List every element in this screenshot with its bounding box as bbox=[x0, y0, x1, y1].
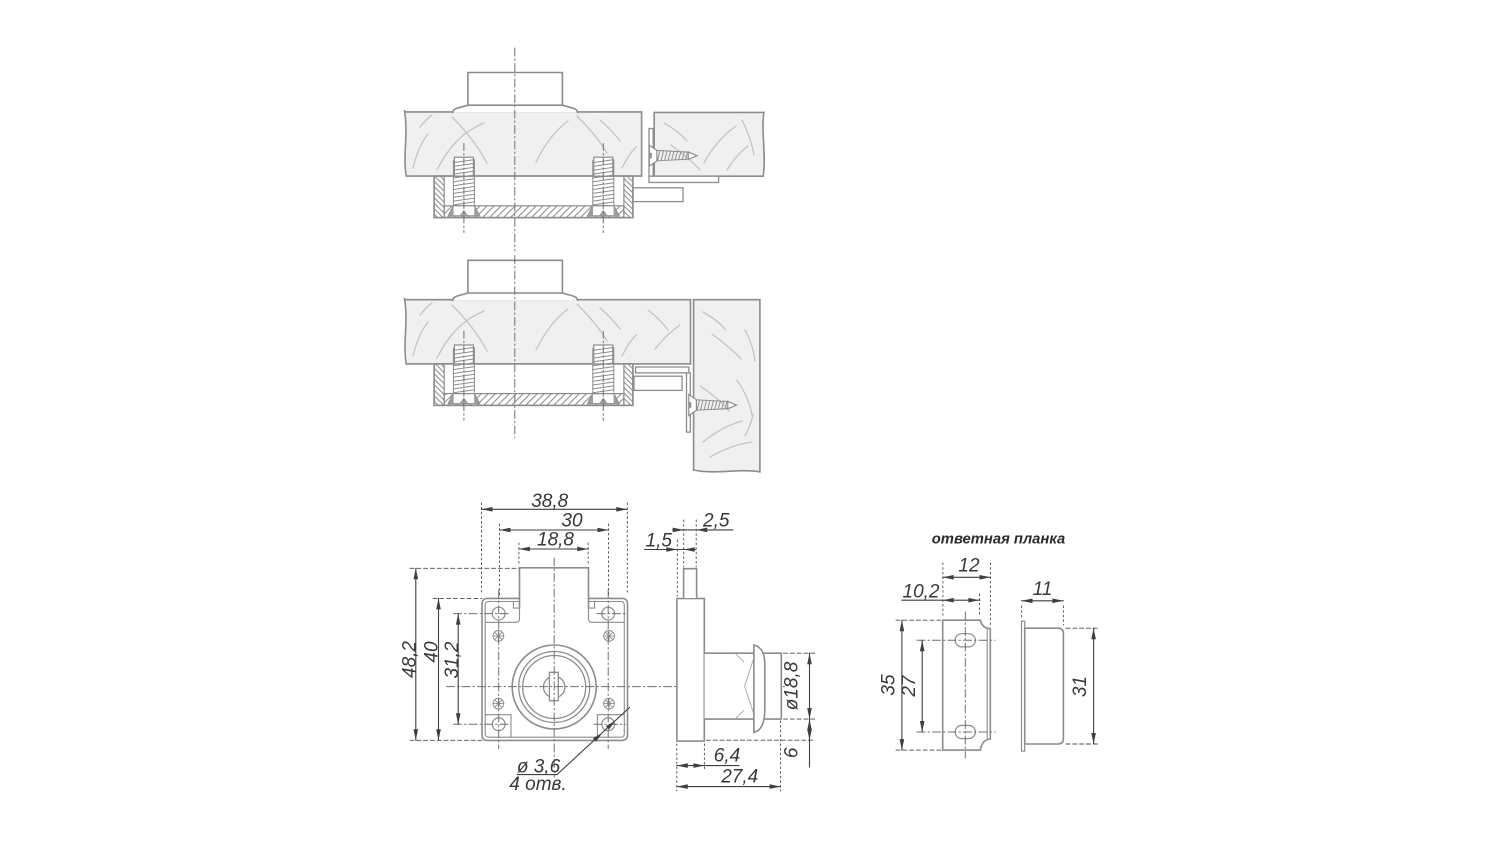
svg-text:ø18,8: ø18,8 bbox=[782, 661, 803, 710]
svg-text:10,2: 10,2 bbox=[903, 581, 940, 602]
svg-text:18,8: 18,8 bbox=[537, 530, 574, 551]
svg-text:30: 30 bbox=[561, 511, 583, 532]
svg-text:48,2: 48,2 bbox=[400, 641, 421, 678]
svg-text:6: 6 bbox=[782, 747, 803, 758]
svg-text:6,4: 6,4 bbox=[714, 745, 740, 766]
svg-text:12: 12 bbox=[958, 555, 980, 576]
svg-text:31,2: 31,2 bbox=[442, 641, 463, 678]
svg-text:27,4: 27,4 bbox=[720, 767, 758, 788]
svg-text:4 отв.: 4 отв. bbox=[509, 774, 566, 795]
svg-text:38,8: 38,8 bbox=[531, 491, 568, 512]
svg-text:11: 11 bbox=[1033, 579, 1053, 600]
svg-text:40: 40 bbox=[422, 641, 443, 663]
svg-text:35: 35 bbox=[879, 674, 900, 696]
svg-text:2,5: 2,5 bbox=[702, 511, 730, 532]
svg-text:31: 31 bbox=[1070, 676, 1091, 697]
svg-text:1,5: 1,5 bbox=[646, 530, 673, 551]
svg-text:ответная планка: ответная планка bbox=[932, 532, 1065, 548]
svg-text:27: 27 bbox=[899, 674, 920, 698]
